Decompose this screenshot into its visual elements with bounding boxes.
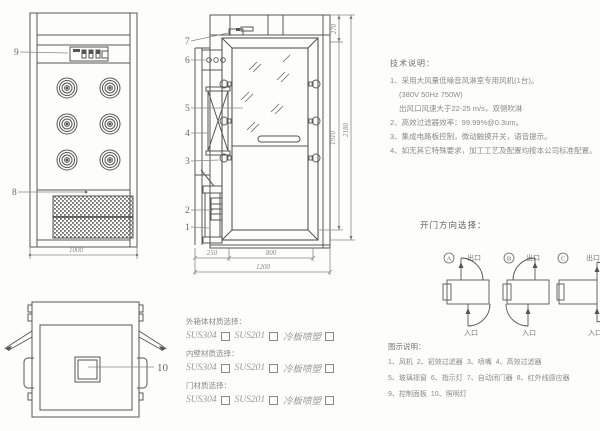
door-handle: [258, 136, 300, 142]
nozzles-front: [57, 78, 120, 170]
legend-item: 9、控制面板: [388, 389, 427, 399]
legend-row: 5、玻璃视窗 6、指示灯 7、自动闭门器 8、红外线感应器: [388, 373, 600, 383]
legend: 图示说明： 1、风机 2、初效过滤器 3、喷嘴 4、高效过滤器 5、玻璃视窗 6…: [388, 341, 600, 405]
material-option-label: SUS201: [234, 395, 265, 405]
top-view: 10: [2, 295, 198, 431]
entry-label: 入口: [464, 329, 478, 337]
material-selection: 外箱体材质选择： SUS304 SUS201 冷板喷塑 内壁材质选择： SUS3…: [186, 316, 334, 412]
door: [222, 38, 318, 240]
legend-row: 9、控制面板 10、照明灯: [388, 389, 600, 399]
legend-row: 1、风机 2、初效过滤器 3、喷嘴 4、高效过滤器: [388, 357, 600, 367]
door-closer: [229, 27, 253, 35]
tech-note-line: 2、高效过滤器效率：99.99%@0.3um。: [390, 116, 598, 130]
svg-text:2180: 2180: [342, 123, 350, 138]
material-option-label: SUS201: [234, 331, 265, 341]
exit-label: 出口: [526, 253, 540, 262]
svg-text:1000: 1000: [69, 246, 84, 254]
svg-text:250: 250: [207, 249, 218, 257]
door-swing-arrows: [4, 331, 167, 351]
tech-notes-title: 技术说明：: [390, 57, 598, 71]
svg-text:2: 2: [185, 206, 190, 216]
nozzles-side: [220, 80, 320, 162]
tech-notes: 技术说明： 1、采用大风量低噪音风淋室专用风机(1台)。 (380V 50Hz …: [390, 57, 598, 158]
svg-text:4: 4: [185, 129, 190, 139]
material-checkbox[interactable]: [325, 332, 334, 341]
material-section-title: 门材质选择：: [186, 380, 334, 391]
svg-text:C: C: [561, 256, 565, 263]
return-air-grille: [53, 196, 133, 238]
control-panel: [70, 47, 108, 61]
top-structure: [24, 302, 147, 417]
exit-label: 出口: [586, 253, 600, 262]
material-option-label: 冷板喷塑: [283, 329, 321, 343]
material-options-row: SUS304 SUS201 冷板喷塑: [186, 329, 334, 343]
door-direction-options: A 出口 入口 B 出口: [441, 248, 599, 336]
svg-text:800: 800: [266, 249, 277, 257]
tech-note-line: 出风口风速大于22-25 m/s，双侧吹淋: [390, 102, 598, 116]
material-checkbox[interactable]: [325, 396, 334, 405]
material-options-row: SUS304 SUS201 冷板喷塑: [186, 393, 334, 407]
svg-text:1: 1: [185, 223, 190, 233]
material-checkbox[interactable]: [325, 364, 334, 373]
svg-text:9: 9: [14, 48, 19, 58]
svg-text:8: 8: [12, 188, 17, 198]
legend-item: 6、指示灯: [431, 373, 463, 383]
side-dimensions-bottom: 250 800 1200: [193, 248, 332, 275]
legend-item: 7、自动闭门器: [467, 373, 513, 383]
legend-item: 2、初效过滤器: [417, 357, 463, 367]
material-checkbox[interactable]: [221, 364, 230, 373]
material-options-row: SUS304 SUS201 冷板喷塑: [186, 361, 334, 375]
door-option-c: C 出口 入口: [557, 248, 600, 336]
material-option-label: SUS304: [186, 331, 217, 341]
callout-9: 9: [14, 48, 68, 58]
material-option-label: SUS304: [186, 363, 217, 373]
entry-label: 入口: [588, 329, 600, 337]
side-dimensions-right: 270 1910 2180: [318, 15, 355, 240]
material-section-title: 外箱体材质选择：: [186, 316, 334, 327]
material-checkbox[interactable]: [269, 396, 278, 405]
legend-item: 4、高效过滤器: [496, 357, 542, 367]
front-view: 1000 9 8: [10, 8, 180, 270]
svg-text:A: A: [447, 256, 452, 263]
svg-text:1910: 1910: [329, 131, 337, 146]
drawing-sheet: 1000 9 8: [0, 0, 600, 431]
legend-item: 10、照明灯: [431, 389, 467, 399]
material-checkbox[interactable]: [221, 396, 230, 405]
material-option-label: 冷板喷塑: [283, 361, 321, 375]
svg-text:3: 3: [185, 157, 190, 167]
material-option-label: SUS304: [186, 395, 217, 405]
svg-text:6: 6: [185, 56, 190, 66]
legend-item: 1、风机: [388, 357, 413, 367]
tech-note-line: 4、如无其它特殊要求，加工工艺及配置均按本公司标准配置。: [390, 144, 598, 158]
material-option-label: SUS201: [234, 363, 265, 373]
material-option-label: 冷板喷塑: [283, 393, 321, 407]
material-checkbox[interactable]: [221, 332, 230, 341]
svg-text:5: 5: [185, 104, 190, 114]
door-option-a: A 出口 入口: [441, 248, 497, 336]
svg-text:10: 10: [157, 362, 169, 374]
front-dimension-1000: 1000: [29, 246, 138, 259]
legend-title: 图示说明：: [388, 341, 600, 352]
material-checkbox[interactable]: [269, 332, 278, 341]
svg-text:7: 7: [185, 37, 190, 47]
exit-label: 出口: [467, 253, 481, 262]
side-structure: [195, 15, 330, 248]
material-checkbox[interactable]: [269, 364, 278, 373]
tech-note-line: 1、采用大风量低噪音风淋室专用风机(1台)。: [390, 74, 598, 88]
fan-assembly: [203, 186, 222, 243]
legend-item: 5、玻璃视窗: [388, 373, 427, 383]
tech-note-line: (380V 50Hz 750W): [390, 88, 598, 102]
legend-item: 3、喷嘴: [467, 357, 492, 367]
door-glass-hatching: [241, 55, 290, 132]
legend-item: 8、红外线感应器: [517, 373, 570, 383]
svg-text:270: 270: [330, 23, 338, 34]
tech-note-line: 3、集成电路板控制，微动触摸开关，语音提示。: [390, 130, 598, 144]
side-view: 7 6 5 4 3 2 1 250 800 1200: [183, 8, 373, 293]
material-section-title: 内壁材质选择：: [186, 348, 334, 359]
svg-text:B: B: [507, 256, 512, 263]
entry-label: 入口: [522, 329, 536, 337]
door-direction-title: 开门方向选择：: [420, 219, 487, 231]
svg-text:1200: 1200: [256, 263, 271, 271]
door-option-b: B 出口 入口: [499, 248, 555, 336]
